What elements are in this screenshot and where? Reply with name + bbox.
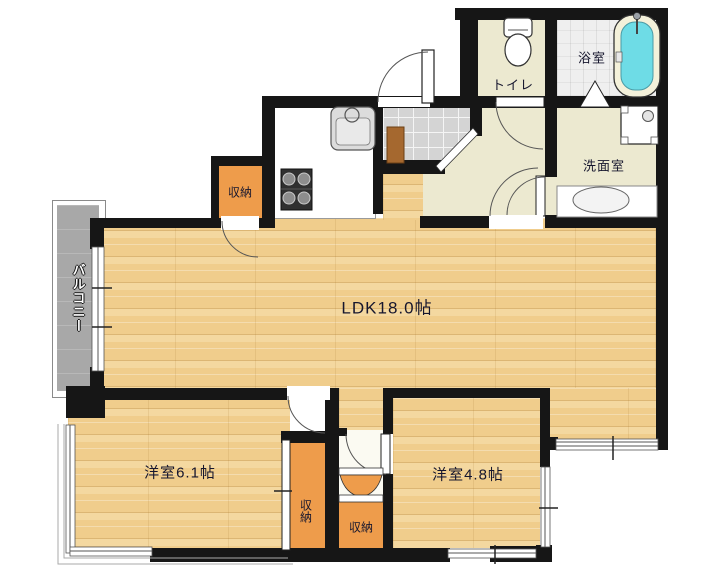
ldk-floor-stub xyxy=(339,388,389,430)
ldk-floor-genkan-side xyxy=(383,172,425,220)
washroom-label: 洗面室 xyxy=(583,156,625,175)
toilet-label: トイレ xyxy=(492,75,534,94)
bedroom61-door xyxy=(287,386,330,433)
bedroom48-door-pocket xyxy=(339,430,383,498)
storage-kitchen-label: 収納 xyxy=(228,184,252,201)
kitchen-area xyxy=(272,104,376,219)
bathroom-floor xyxy=(557,18,656,96)
ldk-floor-right-arm xyxy=(548,388,658,442)
storage-bedroom61-label: 収納 xyxy=(298,499,315,523)
storage-bedroom61-box xyxy=(283,440,325,550)
floor-plan: LDK18.0帖 洋室6.1帖 洋室4.8帖 トイレ 浴室 洗面室 バルコニー … xyxy=(0,0,720,576)
storage-corridor-label: 収納 xyxy=(349,519,373,536)
bedroom48-label: 洋室4.8帖 xyxy=(432,464,504,485)
bathroom-label: 浴室 xyxy=(578,48,606,67)
ldk-label: LDK18.0帖 xyxy=(341,294,432,319)
balcony-label: バルコニー xyxy=(69,263,88,333)
window-bedroom48-right xyxy=(539,467,558,547)
bedroom61-label: 洋室6.1帖 xyxy=(144,462,216,483)
